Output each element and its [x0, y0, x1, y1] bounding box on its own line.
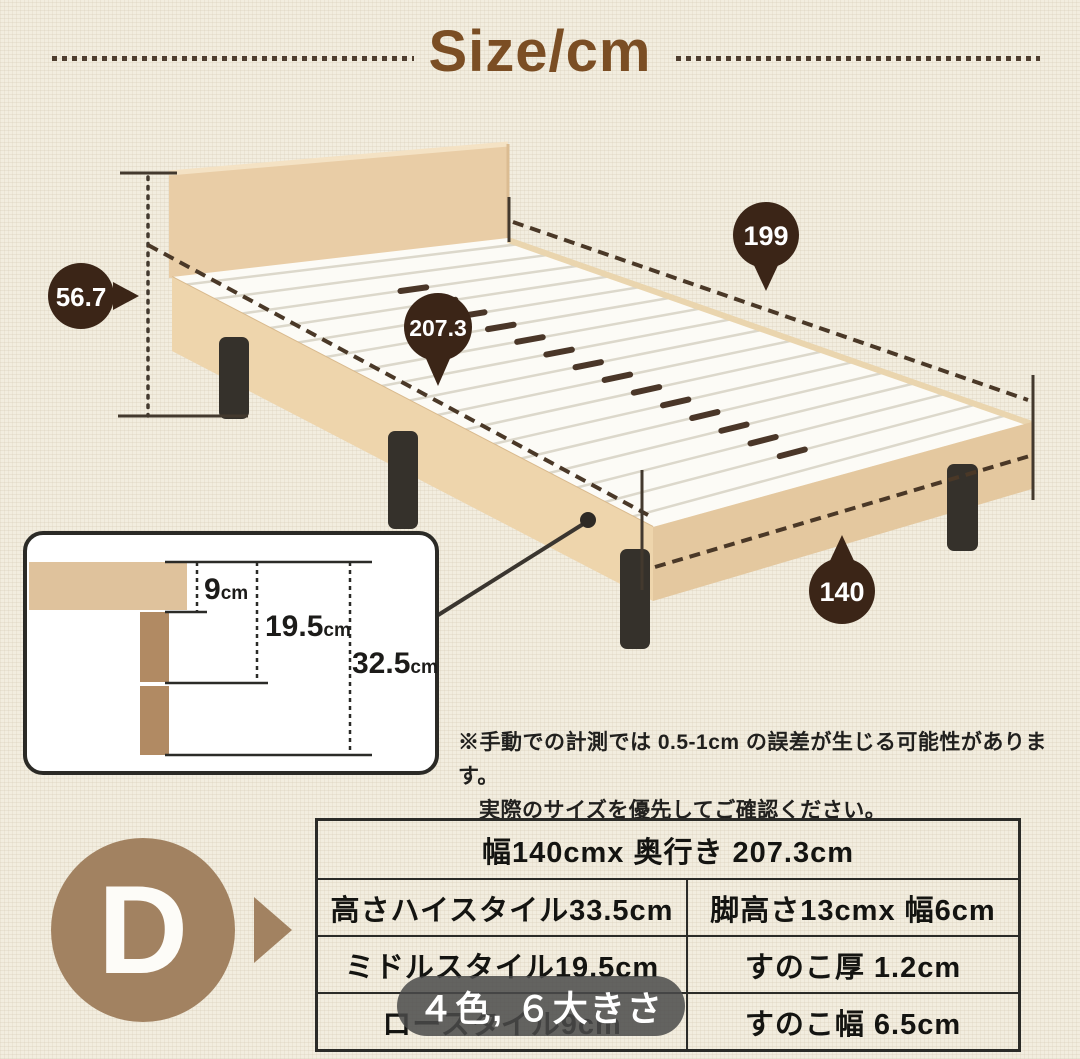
svg-text:199: 199	[743, 221, 788, 251]
variant-d-badge: D	[51, 838, 235, 1022]
svg-text:207.3: 207.3	[409, 315, 467, 341]
spec-slat-thickness: すのこ厚 1.2cm	[686, 935, 1018, 992]
spec-size-row: 幅140cmx 奥行き 207.3cm	[318, 821, 1018, 878]
variant-d-arrow-icon	[254, 897, 292, 963]
note-line-1: ※手動での計測では 0.5-1cm の誤差が生じる可能性があります。	[458, 726, 1080, 794]
bed-leg	[388, 431, 418, 529]
svg-text:56.7: 56.7	[56, 282, 107, 312]
spec-leg-size: 脚高さ13cmx 幅6cm	[686, 878, 1018, 935]
inset-frame-rail	[29, 562, 187, 610]
size-infographic: Size/cm	[0, 0, 1080, 1059]
inset-leg-lower	[140, 686, 169, 755]
inset-pointer-line	[435, 521, 588, 617]
spec-slat-width: すのこ幅 6.5cm	[686, 992, 1018, 1049]
spec-high-style: 高さハイスタイル33.5cm	[318, 878, 686, 935]
badge-total-height: 56.7	[48, 263, 139, 329]
inset-pointer-dot	[580, 512, 596, 528]
svg-text:140: 140	[819, 577, 864, 607]
bed-leg	[620, 549, 650, 649]
caption-overlay: ４色, ６大きさ	[397, 976, 685, 1036]
measurement-note: ※手動での計測では 0.5-1cm の誤差が生じる可能性があります。 実際のサイ…	[458, 726, 1080, 828]
badge-top-length: 199	[733, 202, 799, 291]
inset-leg-upper	[140, 612, 169, 682]
bed-leg	[219, 337, 249, 419]
leg-detail-inset: 9cm 19.5cm 32.5cm	[25, 533, 438, 773]
